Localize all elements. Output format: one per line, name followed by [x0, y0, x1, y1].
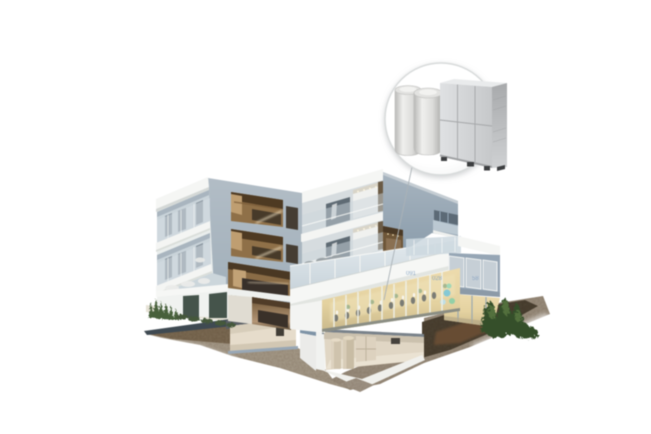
svg-text:028: 028 [432, 276, 443, 282]
svg-text:091: 091 [406, 271, 417, 277]
svg-text:58: 58 [472, 276, 479, 282]
